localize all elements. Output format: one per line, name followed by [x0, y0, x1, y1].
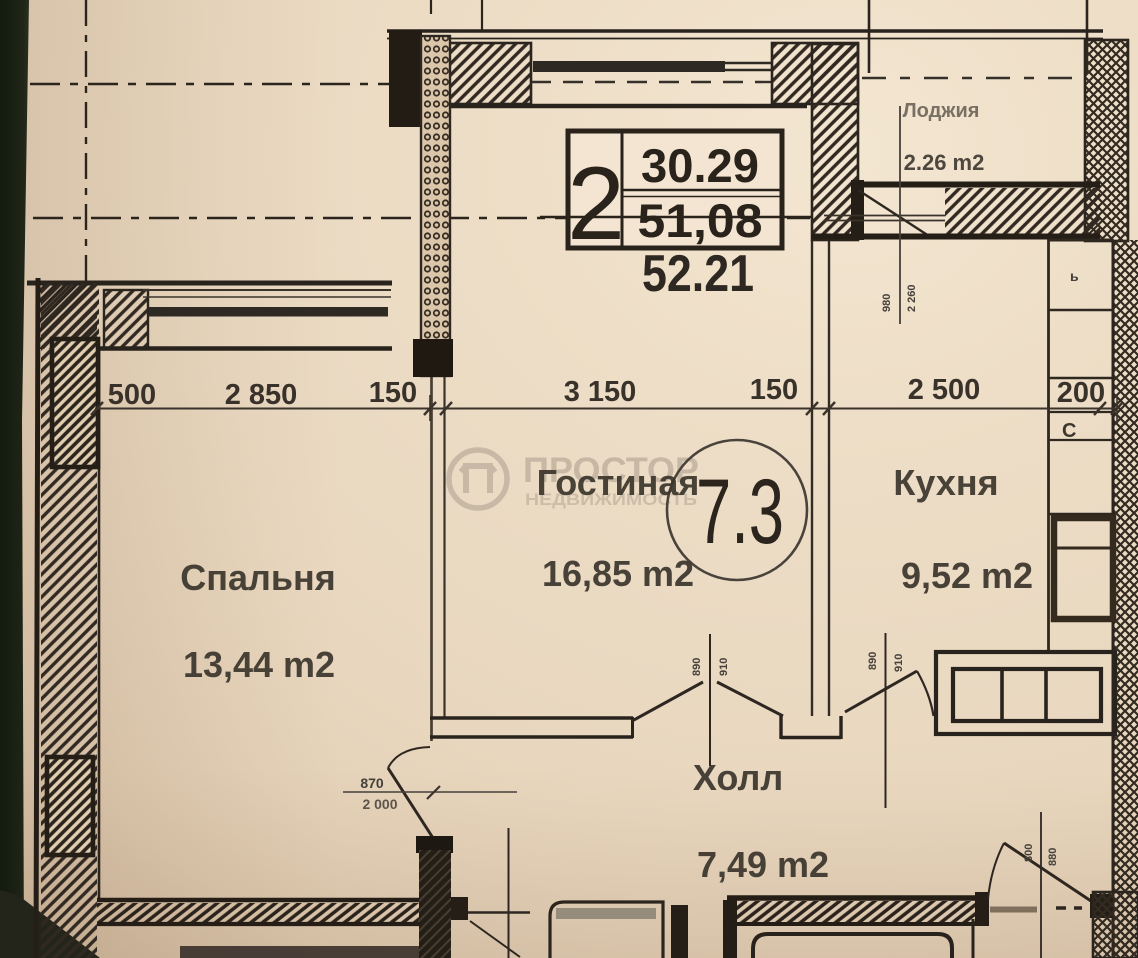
svg-text:910: 910	[893, 654, 905, 672]
svg-text:150: 150	[750, 374, 798, 406]
svg-text:Спальня: Спальня	[180, 557, 336, 598]
svg-text:2 500: 2 500	[908, 374, 981, 406]
svg-text:890: 890	[691, 658, 703, 676]
svg-text:С: С	[1062, 420, 1076, 442]
svg-text:3 150: 3 150	[564, 376, 637, 408]
svg-text:2.26 m2: 2.26 m2	[904, 150, 985, 175]
svg-text:980: 980	[881, 294, 893, 312]
svg-text:52.21: 52.21	[642, 245, 754, 303]
svg-text:2 850: 2 850	[225, 379, 298, 411]
svg-text:9,52 m2: 9,52 m2	[901, 555, 1033, 596]
svg-text:30.29: 30.29	[641, 139, 759, 192]
svg-text:7,49 m2: 7,49 m2	[697, 844, 829, 885]
svg-text:Холл: Холл	[693, 757, 783, 798]
svg-text:800: 800	[1023, 844, 1035, 862]
svg-text:16,85 m2: 16,85 m2	[542, 553, 694, 594]
svg-text:870: 870	[360, 775, 384, 791]
svg-text:Лоджия: Лоджия	[903, 100, 980, 122]
svg-text:7.3: 7.3	[696, 461, 784, 563]
svg-text:ь: ь	[1070, 268, 1079, 284]
svg-text:13,44 m2: 13,44 m2	[183, 644, 335, 685]
svg-text:910: 910	[718, 658, 730, 676]
svg-text:200: 200	[1057, 377, 1105, 409]
svg-text:Кухня: Кухня	[893, 462, 998, 503]
svg-text:880: 880	[1047, 848, 1059, 866]
svg-text:Гостиная: Гостиная	[537, 462, 700, 503]
svg-text:890: 890	[867, 652, 879, 670]
svg-text:2 260: 2 260	[906, 284, 918, 312]
svg-text:2 000: 2 000	[362, 796, 397, 812]
svg-text:500: 500	[108, 379, 156, 411]
svg-text:150: 150	[369, 377, 417, 409]
svg-text:51,08: 51,08	[638, 194, 763, 247]
svg-text:2: 2	[567, 146, 625, 262]
